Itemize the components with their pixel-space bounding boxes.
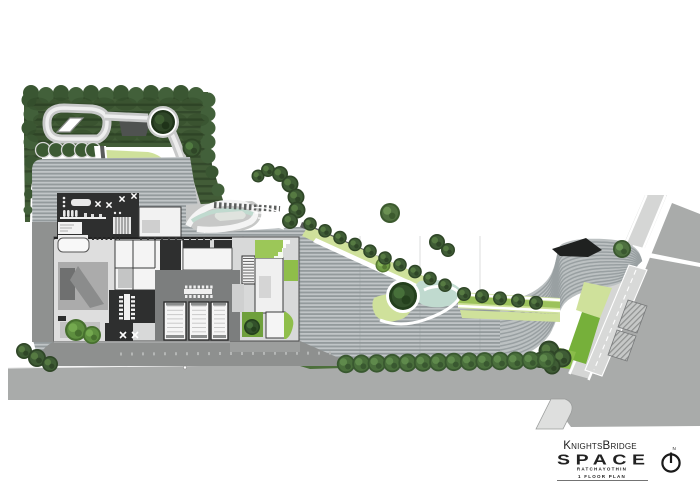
svg-text:RATCHAYOTHIN: RATCHAYOTHIN: [577, 467, 627, 472]
svg-text:N: N: [673, 446, 676, 451]
svg-text:SPACE: SPACE: [557, 451, 651, 468]
svg-text:1 FLOOR PLAN: 1 FLOOR PLAN: [578, 474, 626, 479]
